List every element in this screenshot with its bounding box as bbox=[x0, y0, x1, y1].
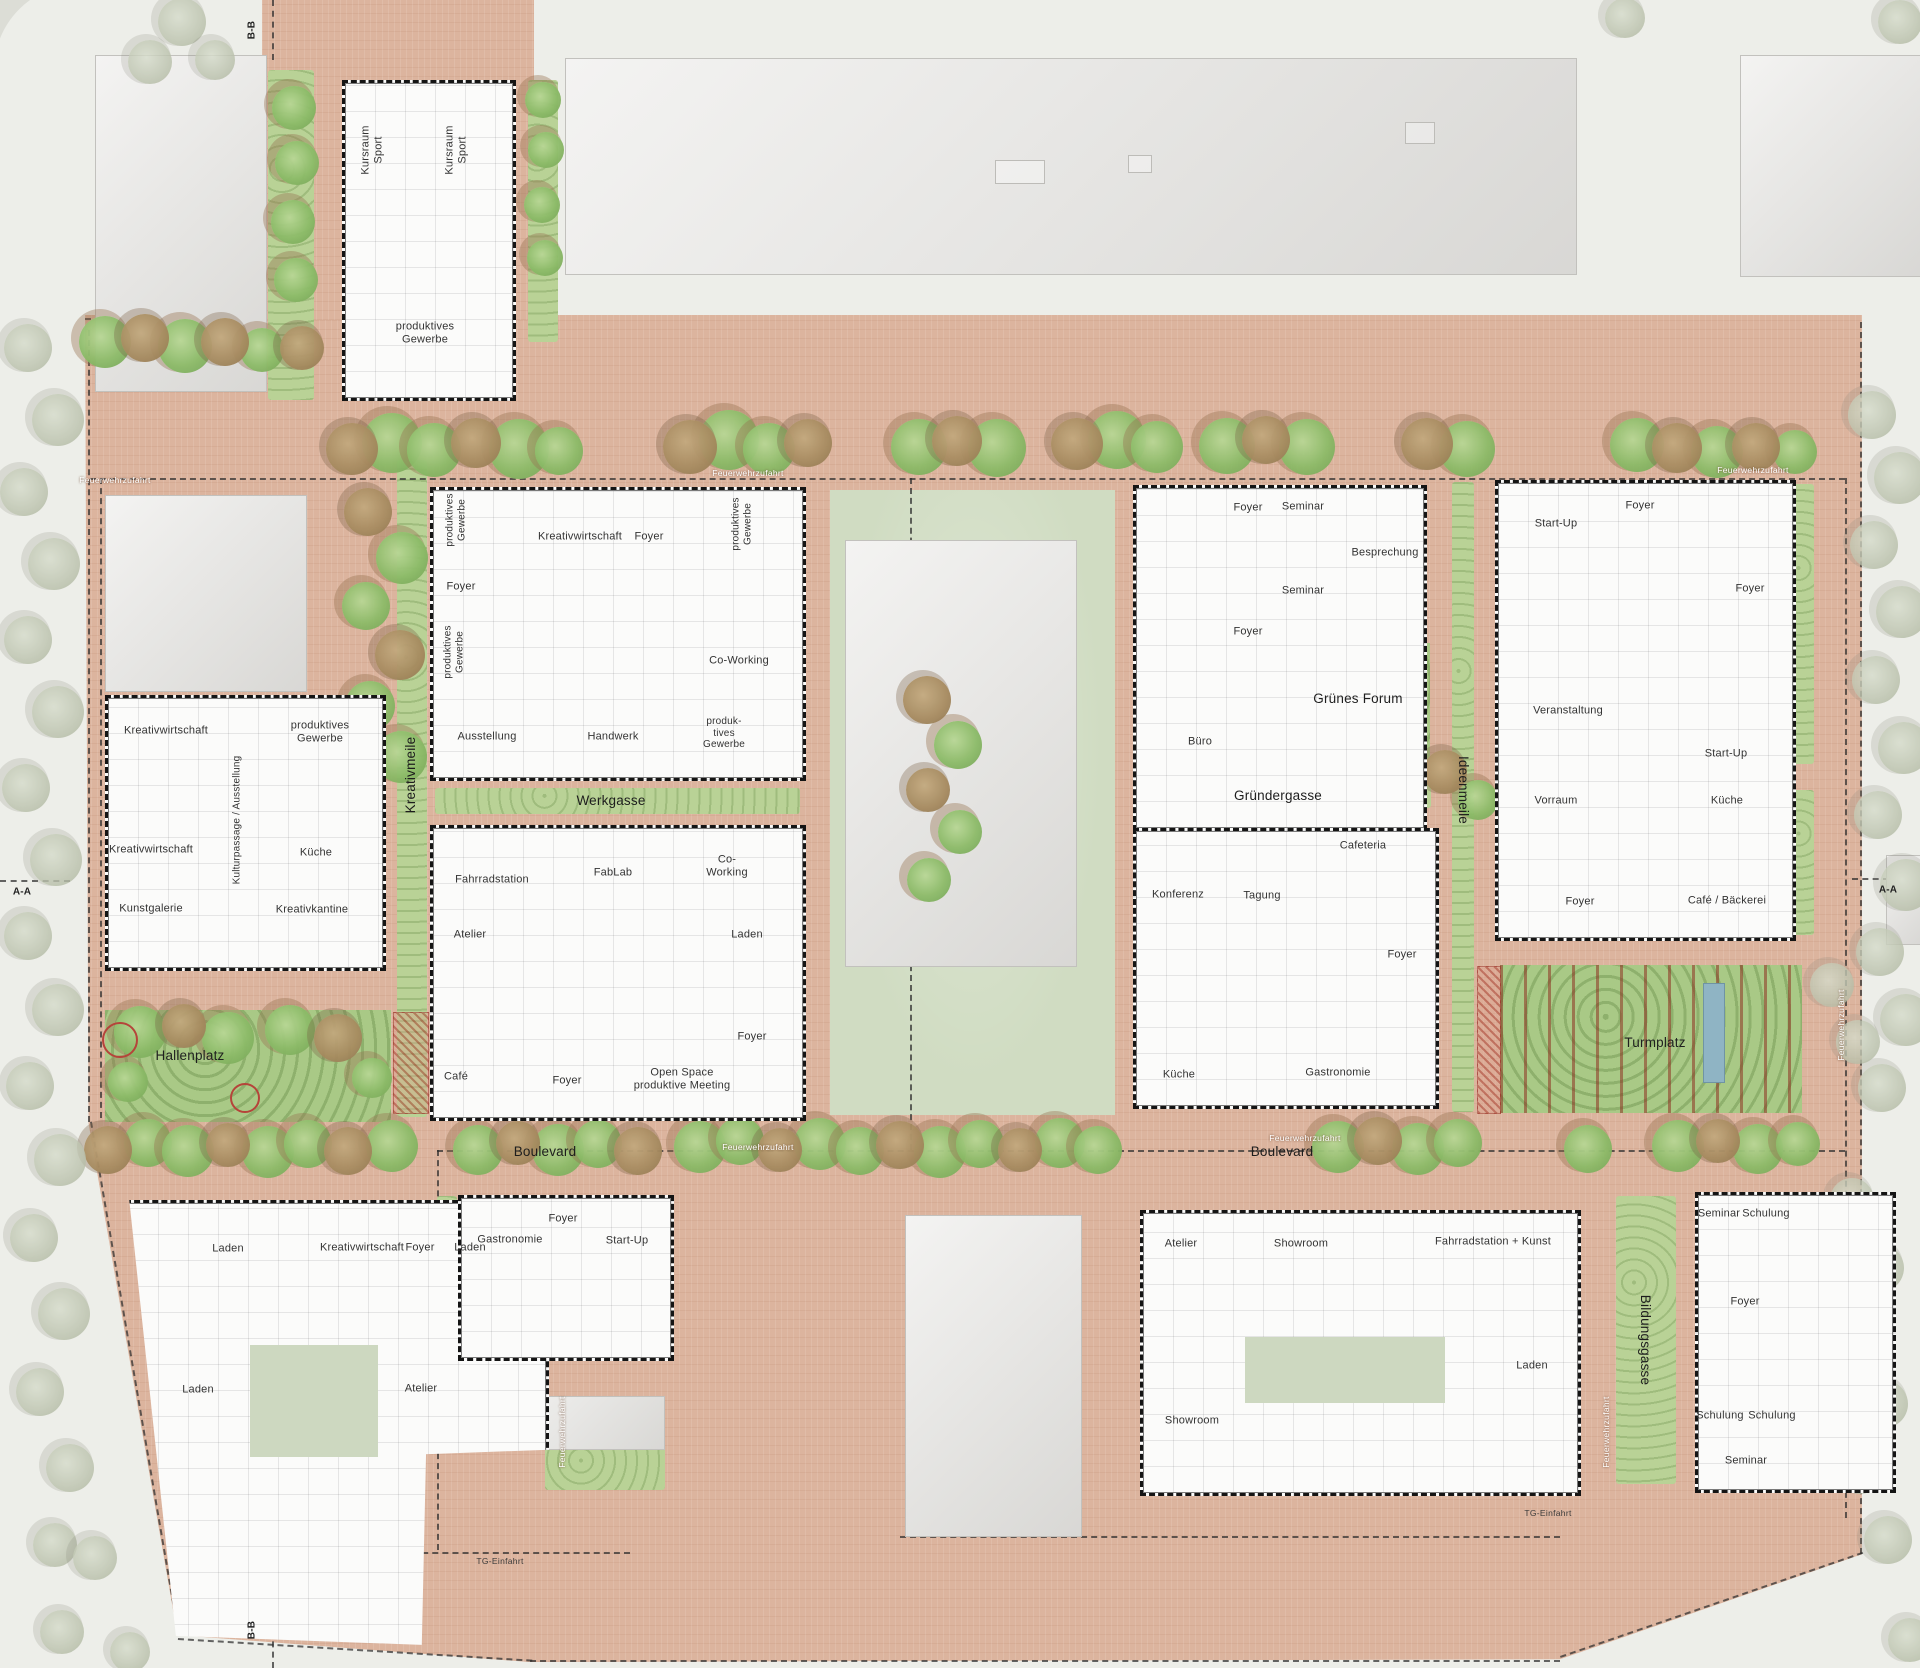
room-label: Ausstellung bbox=[457, 731, 516, 744]
room-label: Atelier bbox=[454, 929, 487, 942]
room-label: produk- tives Gewerbe bbox=[703, 716, 745, 751]
room-label: Konferenz bbox=[1152, 889, 1204, 902]
room-label: Start-Up bbox=[606, 1235, 649, 1248]
access-label: Feuerwehrzufahrt bbox=[1602, 1396, 1612, 1467]
room-label: Atelier bbox=[1165, 1238, 1198, 1251]
access-label: Feuerwehrzufahrt bbox=[1717, 466, 1788, 476]
room-label: Laden bbox=[731, 929, 763, 942]
room-label: Seminar bbox=[1698, 1208, 1740, 1221]
room-label: Co-Working bbox=[709, 655, 769, 668]
room-label: Kursraum Sport bbox=[359, 125, 384, 174]
room-label: Gastronomie bbox=[477, 1234, 542, 1247]
room-label: Fahrradstation + Kunst bbox=[1435, 1236, 1551, 1249]
room-label: produktives Gewerbe bbox=[731, 497, 754, 550]
room-label: Showroom bbox=[1165, 1415, 1219, 1428]
room-label: Co- Working bbox=[706, 853, 748, 878]
plaza-label: Turmplatz bbox=[1624, 1035, 1685, 1051]
plaza-label: Hallenplatz bbox=[156, 1048, 225, 1064]
room-label: Foyer bbox=[405, 1242, 434, 1255]
room-label: Foyer bbox=[1233, 626, 1262, 639]
access-label: Feuerwehrzufahrt bbox=[1269, 1134, 1340, 1144]
room-label: Kreativwirtschaft bbox=[124, 725, 208, 738]
room-label: Kulturpassage / Ausstellung bbox=[231, 756, 243, 885]
room-label: Foyer bbox=[1387, 949, 1416, 962]
street-label: Boulevard bbox=[514, 1144, 577, 1160]
room-label: Foyer bbox=[1735, 583, 1764, 596]
room-label: Laden bbox=[1516, 1360, 1548, 1373]
room-label: Foyer bbox=[446, 581, 475, 594]
room-label: Küche bbox=[1163, 1069, 1195, 1082]
room-label: Gastronomie bbox=[1305, 1067, 1370, 1080]
access-label: Feuerwehrzufahrt bbox=[79, 476, 150, 486]
room-label: Kreativwirtschaft bbox=[109, 844, 193, 857]
room-label: Veranstaltung bbox=[1533, 705, 1603, 718]
room-label: Schulung bbox=[1742, 1208, 1789, 1221]
room-label: Start-Up bbox=[1705, 748, 1748, 761]
street-label: Gründergasse bbox=[1234, 788, 1322, 804]
room-label: produktives Gewerbe bbox=[291, 719, 349, 744]
room-label: Foyer bbox=[548, 1213, 577, 1226]
room-label: Atelier bbox=[405, 1383, 438, 1396]
room-label: Foyer bbox=[1730, 1296, 1759, 1309]
room-label: produktives Gewerbe bbox=[396, 320, 454, 345]
site-plan-canvas: Kursraum SportKursraum Sportproduktives … bbox=[0, 0, 1920, 1668]
room-label: Kunstgalerie bbox=[119, 903, 183, 916]
room-label: Start-Up bbox=[1535, 518, 1578, 531]
room-label: produktives Gewerbe bbox=[445, 493, 468, 546]
street-label: Bildungsgasse bbox=[1637, 1295, 1653, 1385]
street-label: Werkgasse bbox=[576, 793, 645, 809]
room-label: Besprechung bbox=[1351, 547, 1418, 560]
access-label: Feuerwehrzufahrt bbox=[558, 1396, 568, 1467]
room-label: Fahrradstation bbox=[455, 874, 529, 887]
room-label: Open Space produktive Meeting bbox=[634, 1066, 731, 1091]
street-label: Ideenmeile bbox=[1455, 756, 1471, 824]
room-label: Foyer bbox=[552, 1075, 581, 1088]
room-label: Büro bbox=[1188, 736, 1212, 749]
room-label: produktives Gewerbe bbox=[443, 625, 466, 678]
street-label: Kreativmeile bbox=[403, 737, 419, 814]
section-marker: B-B bbox=[246, 21, 258, 39]
room-label: Küche bbox=[300, 847, 332, 860]
room-label: Kreativwirtschaft bbox=[320, 1242, 404, 1255]
room-label: Foyer bbox=[1625, 500, 1654, 513]
room-label: Foyer bbox=[1565, 896, 1594, 909]
room-label: Cafeteria bbox=[1340, 840, 1386, 853]
room-label: Schulung bbox=[1748, 1410, 1795, 1423]
room-label: Kreativkantine bbox=[276, 904, 349, 917]
access-label: Feuerwehrzufahrt bbox=[1837, 989, 1847, 1060]
street-label: Boulevard bbox=[1251, 1144, 1314, 1160]
room-label: Foyer bbox=[634, 531, 663, 544]
room-label: Schulung bbox=[1696, 1410, 1743, 1423]
access-label: TG-Einfahrt bbox=[1524, 1509, 1571, 1519]
room-label: Seminar bbox=[1282, 501, 1324, 514]
room-label: Handwerk bbox=[587, 731, 638, 744]
room-label: Laden bbox=[182, 1384, 214, 1397]
room-label: Foyer bbox=[1233, 502, 1262, 515]
room-label: Laden bbox=[212, 1243, 244, 1256]
room-label: Café bbox=[444, 1071, 468, 1084]
room-label: Café / Bäckerei bbox=[1688, 895, 1766, 908]
room-label: Küche bbox=[1711, 795, 1743, 808]
section-marker: B-B bbox=[246, 1621, 258, 1639]
plaza-label: Grünes Forum bbox=[1313, 691, 1402, 707]
room-label: Kreativwirtschaft bbox=[538, 531, 622, 544]
room-label: Kursraum Sport bbox=[443, 125, 468, 174]
room-label: Showroom bbox=[1274, 1238, 1328, 1251]
section-marker: A-A bbox=[1879, 884, 1897, 896]
access-label: Feuerwehrzufahrt bbox=[722, 1143, 793, 1153]
section-marker: A-A bbox=[13, 886, 31, 898]
room-label: Seminar bbox=[1282, 585, 1324, 598]
room-label: Foyer bbox=[737, 1031, 766, 1044]
room-label: Vorraum bbox=[1535, 795, 1578, 808]
label-layer: Kursraum SportKursraum Sportproduktives … bbox=[0, 0, 1920, 1668]
access-label: Feuerwehrzufahrt bbox=[712, 469, 783, 479]
room-label: FabLab bbox=[594, 867, 633, 880]
room-label: Tagung bbox=[1243, 890, 1280, 903]
access-label: TG-Einfahrt bbox=[476, 1557, 523, 1567]
room-label: Seminar bbox=[1725, 1455, 1767, 1468]
